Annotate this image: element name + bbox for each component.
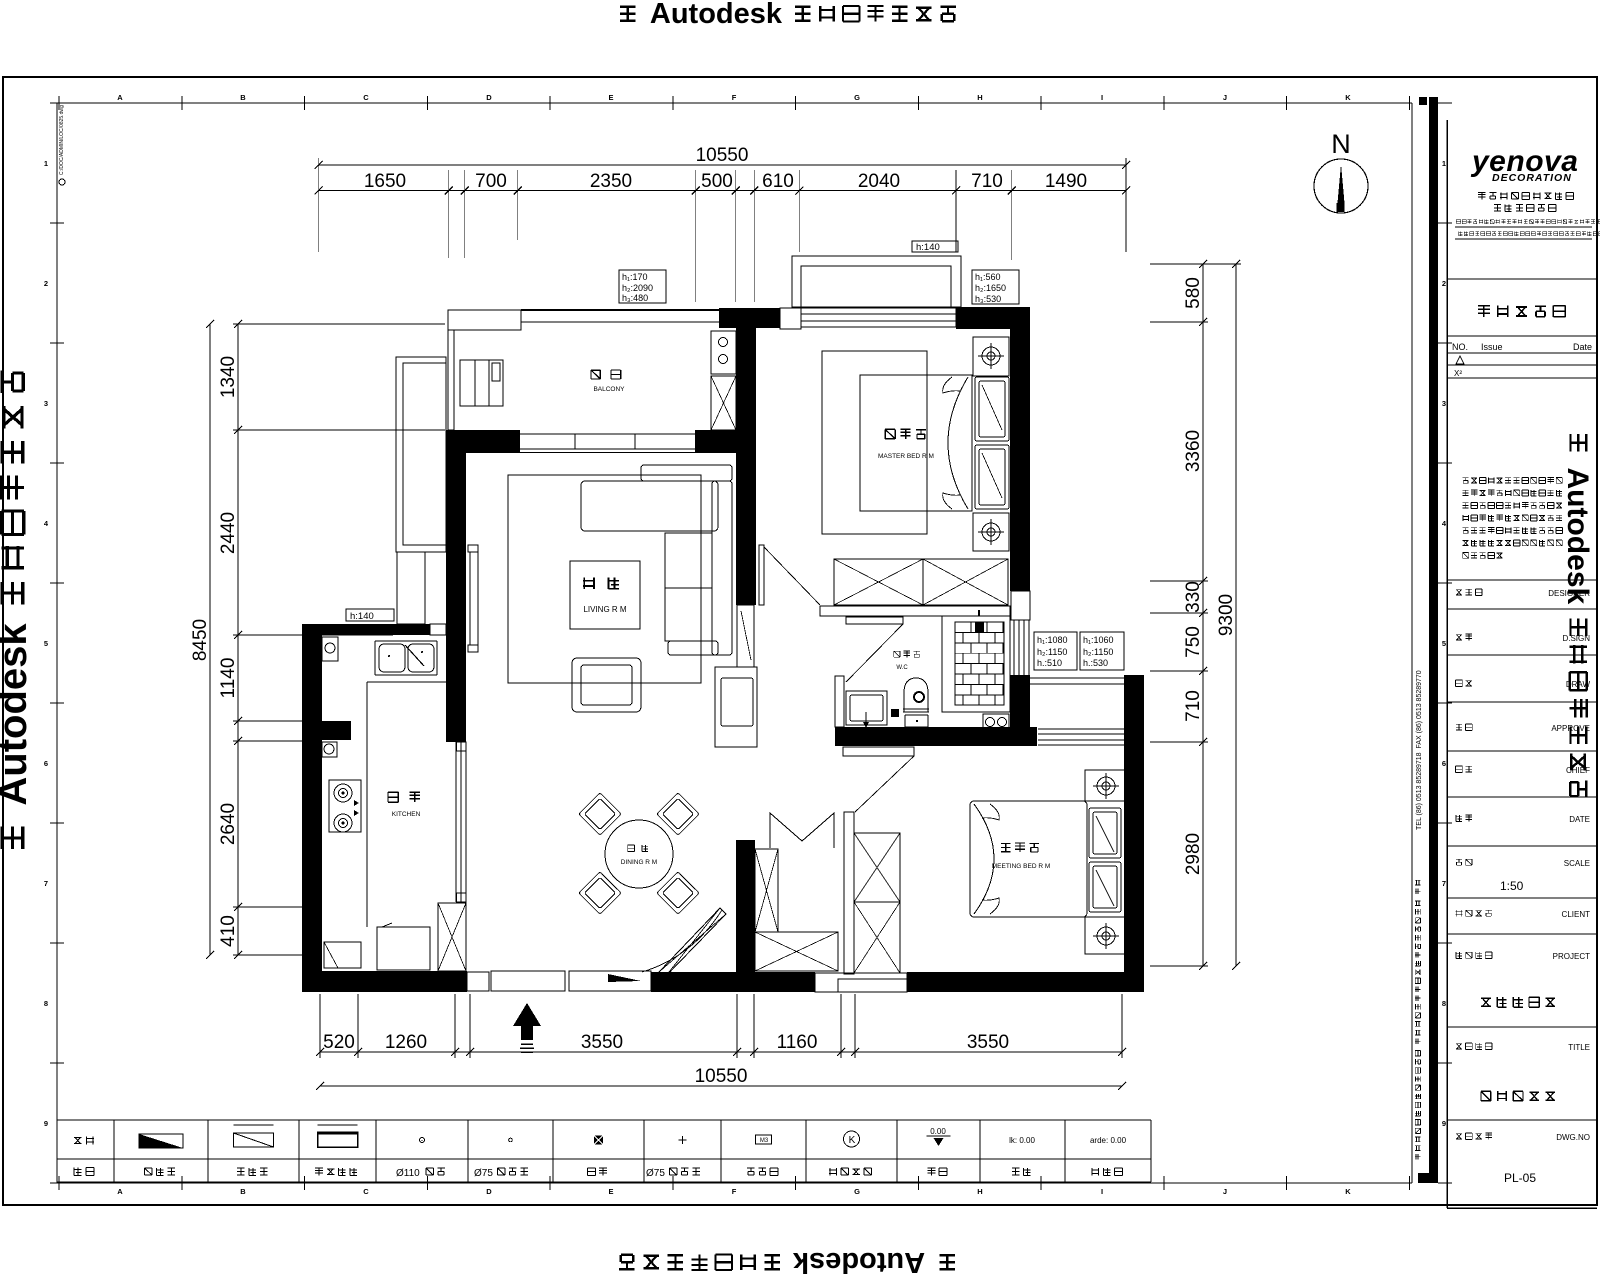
svg-text:h₂:1650: h₂:1650 bbox=[975, 283, 1006, 293]
svg-text:D: D bbox=[486, 93, 492, 102]
svg-text:2350: 2350 bbox=[590, 171, 632, 192]
svg-text:DINING R M: DINING R M bbox=[621, 859, 657, 866]
svg-text:lk: 0.00: lk: 0.00 bbox=[1009, 1136, 1035, 1145]
svg-text:W.C: W.C bbox=[896, 665, 908, 671]
svg-text:C: C bbox=[363, 93, 369, 102]
svg-text:610: 610 bbox=[762, 171, 794, 192]
svg-text:CLIENT: CLIENT bbox=[1562, 910, 1591, 919]
svg-text:2640: 2640 bbox=[218, 803, 239, 845]
svg-text:520: 520 bbox=[323, 1032, 355, 1053]
svg-text:C: C bbox=[363, 1187, 369, 1196]
svg-text:A: A bbox=[117, 1187, 123, 1196]
svg-text:PL-05: PL-05 bbox=[1504, 1171, 1536, 1185]
svg-text:Autodesk: Autodesk bbox=[650, 0, 783, 30]
svg-text:Autodesk: Autodesk bbox=[0, 623, 35, 806]
svg-text:1260: 1260 bbox=[385, 1032, 427, 1053]
svg-text:DECORATION: DECORATION bbox=[1492, 172, 1572, 184]
svg-text:G: G bbox=[854, 1187, 860, 1196]
svg-text:750: 750 bbox=[1183, 626, 1204, 658]
svg-text:PROJECT: PROJECT bbox=[1553, 952, 1590, 961]
svg-text:MEETING BED R M: MEETING BED R M bbox=[992, 863, 1051, 870]
svg-text:7: 7 bbox=[1442, 879, 1446, 888]
svg-text:F: F bbox=[732, 1187, 737, 1196]
svg-text:C:/DOC/ADMIN/LOC/0825.dwg: C:/DOC/ADMIN/LOC/0825.dwg bbox=[59, 105, 65, 175]
svg-text:1340: 1340 bbox=[218, 356, 239, 398]
svg-text:DESIGNER: DESIGNER bbox=[1548, 589, 1590, 598]
svg-text:A: A bbox=[117, 93, 123, 102]
svg-text:h:140: h:140 bbox=[916, 242, 940, 253]
svg-text:1140: 1140 bbox=[218, 658, 239, 699]
svg-text:Autodesk: Autodesk bbox=[1561, 468, 1594, 605]
svg-text:h₃:530: h₃:530 bbox=[975, 294, 1001, 304]
svg-text:LIVING R M: LIVING R M bbox=[583, 605, 626, 614]
svg-text:KITCHEN: KITCHEN bbox=[392, 811, 421, 818]
svg-text:h₂:2090: h₂:2090 bbox=[622, 283, 653, 293]
svg-text:MASTER BED R M: MASTER BED R M bbox=[878, 453, 934, 460]
svg-text:NO.: NO. bbox=[1452, 342, 1468, 352]
svg-text:5: 5 bbox=[1442, 639, 1446, 648]
svg-text:9: 9 bbox=[44, 1119, 48, 1128]
svg-text:2: 2 bbox=[1442, 279, 1446, 288]
svg-text:1:50: 1:50 bbox=[1500, 879, 1524, 893]
svg-text:8: 8 bbox=[1442, 999, 1446, 1008]
svg-text:B: B bbox=[240, 93, 246, 102]
svg-text:1160: 1160 bbox=[777, 1032, 818, 1053]
svg-text:2: 2 bbox=[44, 279, 48, 288]
svg-text:G: G bbox=[854, 93, 860, 102]
svg-text:710: 710 bbox=[971, 171, 1003, 192]
svg-text:Autodesk: Autodesk bbox=[792, 1246, 925, 1278]
svg-text:2440: 2440 bbox=[218, 512, 239, 554]
svg-text:3: 3 bbox=[1442, 399, 1446, 408]
svg-text:K: K bbox=[1345, 1187, 1351, 1196]
svg-text:580: 580 bbox=[1183, 277, 1204, 309]
svg-text:I: I bbox=[1101, 1187, 1103, 1196]
svg-text:h.:510: h.:510 bbox=[1037, 658, 1062, 668]
svg-text:h₁:1060: h₁:1060 bbox=[1083, 635, 1114, 645]
svg-text:6: 6 bbox=[44, 759, 48, 768]
svg-text:D.SIGN: D.SIGN bbox=[1562, 634, 1590, 643]
svg-text:3: 3 bbox=[44, 399, 48, 408]
svg-text:10550: 10550 bbox=[695, 1066, 748, 1087]
svg-text:h₃:480: h₃:480 bbox=[622, 293, 648, 303]
svg-text:0.00: 0.00 bbox=[930, 1127, 946, 1136]
svg-text:N: N bbox=[1331, 129, 1351, 159]
svg-text:1490: 1490 bbox=[1045, 171, 1087, 192]
svg-text:arde: 0.00: arde: 0.00 bbox=[1090, 1136, 1127, 1145]
svg-text:M3: M3 bbox=[760, 1138, 769, 1144]
svg-text:1650: 1650 bbox=[364, 171, 406, 192]
svg-text:DATE: DATE bbox=[1569, 815, 1590, 824]
svg-text:6: 6 bbox=[1442, 759, 1446, 768]
svg-text:10550: 10550 bbox=[696, 145, 749, 166]
svg-text:K: K bbox=[849, 1135, 856, 1146]
svg-text:BALCONY: BALCONY bbox=[593, 386, 625, 393]
svg-text:h₁:560: h₁:560 bbox=[975, 272, 1001, 282]
svg-text:3550: 3550 bbox=[967, 1032, 1009, 1053]
svg-text:7: 7 bbox=[44, 879, 48, 888]
svg-text:3360: 3360 bbox=[1183, 430, 1204, 472]
svg-text:E: E bbox=[608, 1187, 613, 1196]
svg-text:8450: 8450 bbox=[190, 619, 211, 661]
svg-text:Ø75: Ø75 bbox=[474, 1168, 493, 1179]
svg-text:700: 700 bbox=[475, 171, 507, 192]
svg-text:J: J bbox=[1223, 1187, 1227, 1196]
svg-text:500: 500 bbox=[701, 171, 733, 192]
svg-text:TEL (86) 0513 85289718 FAX (8: TEL (86) 0513 85289718 FAX (86) 0513 852… bbox=[1416, 670, 1423, 830]
svg-text:J: J bbox=[1223, 93, 1227, 102]
svg-text:3550: 3550 bbox=[581, 1032, 623, 1053]
svg-text:1: 1 bbox=[44, 159, 48, 168]
svg-text:D: D bbox=[486, 1187, 492, 1196]
svg-text:E: E bbox=[608, 93, 613, 102]
svg-text:X²: X² bbox=[1454, 369, 1462, 378]
svg-text:5: 5 bbox=[44, 639, 48, 648]
svg-text:K: K bbox=[1345, 93, 1351, 102]
svg-text:APPROVE: APPROVE bbox=[1551, 724, 1590, 733]
svg-text:h₂:1150: h₂:1150 bbox=[1037, 647, 1067, 657]
svg-text:h.:530: h.:530 bbox=[1083, 658, 1108, 668]
svg-text:9300: 9300 bbox=[1216, 594, 1237, 636]
svg-text:SCALE: SCALE bbox=[1564, 859, 1590, 868]
svg-text:H: H bbox=[977, 1187, 982, 1196]
svg-text:Ø110: Ø110 bbox=[396, 1168, 420, 1179]
svg-text:h₂:1150: h₂:1150 bbox=[1083, 647, 1113, 657]
svg-text:F: F bbox=[732, 93, 737, 102]
svg-text:TITLE: TITLE bbox=[1568, 1043, 1590, 1052]
svg-text:DRAW: DRAW bbox=[1566, 680, 1591, 689]
svg-text:H: H bbox=[977, 93, 982, 102]
svg-text:Ø75: Ø75 bbox=[646, 1168, 665, 1179]
svg-text:B: B bbox=[240, 1187, 246, 1196]
svg-text:8: 8 bbox=[44, 999, 48, 1008]
svg-text:h₁:1080: h₁:1080 bbox=[1037, 635, 1068, 645]
svg-text:DWG.NO: DWG.NO bbox=[1556, 1133, 1590, 1142]
svg-text:1: 1 bbox=[1442, 159, 1446, 168]
svg-text:h₁:170: h₁:170 bbox=[622, 272, 648, 282]
svg-text:330: 330 bbox=[1183, 581, 1204, 613]
svg-text:410: 410 bbox=[218, 915, 239, 947]
svg-text:Issue: Issue bbox=[1481, 342, 1503, 352]
svg-text:Date: Date bbox=[1573, 342, 1592, 352]
svg-text:I: I bbox=[1101, 93, 1103, 102]
svg-text:710: 710 bbox=[1183, 690, 1204, 722]
svg-text:2980: 2980 bbox=[1183, 833, 1204, 875]
svg-text:2040: 2040 bbox=[858, 171, 900, 192]
svg-text:9: 9 bbox=[1442, 1119, 1446, 1128]
svg-text:CHIEF: CHIEF bbox=[1566, 766, 1590, 775]
svg-text:h:140: h:140 bbox=[350, 611, 374, 622]
